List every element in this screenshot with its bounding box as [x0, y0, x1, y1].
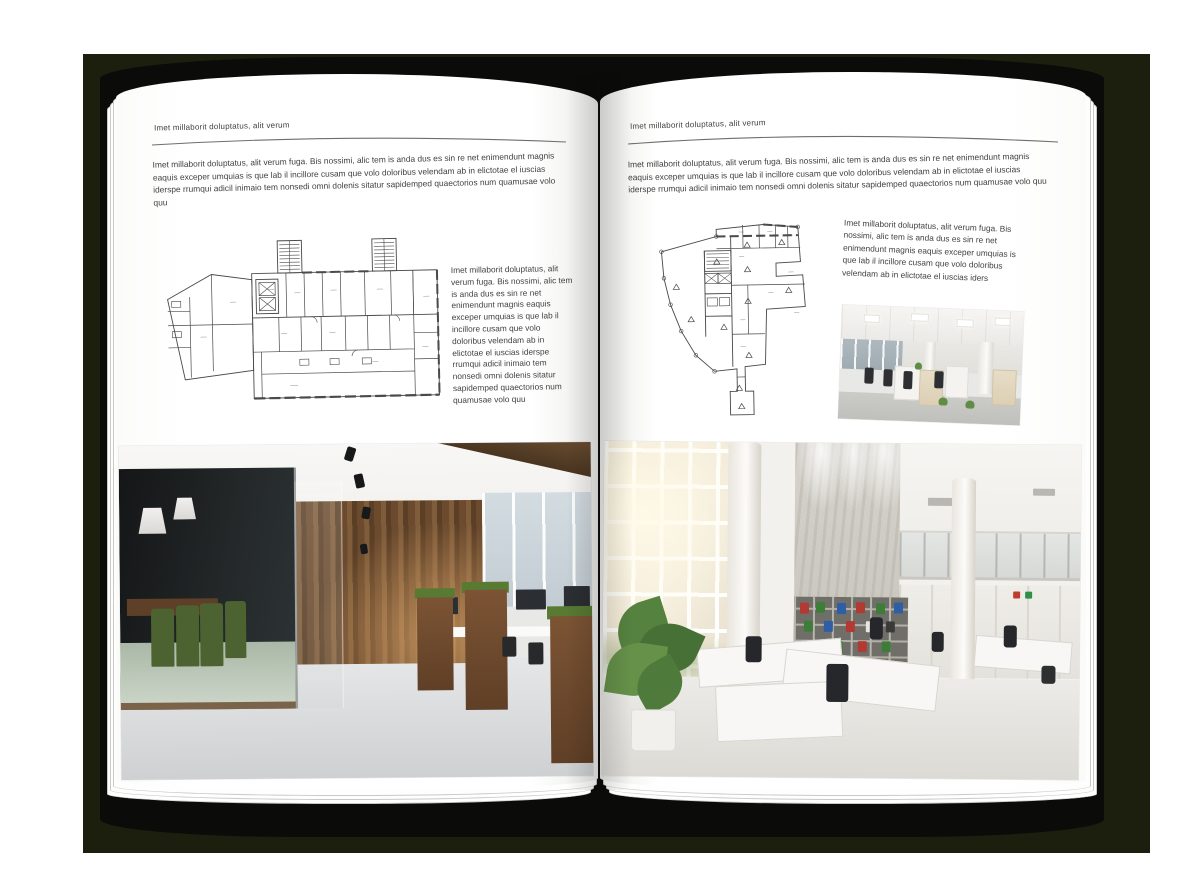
small-plant — [966, 401, 975, 409]
first-aid-sign — [1013, 592, 1020, 599]
binders-red — [857, 641, 866, 652]
pendant-lamp — [138, 507, 166, 534]
left-intro-paragraph: Imet millaborit doluptatus, alit verum f… — [152, 149, 563, 209]
binders-dark — [886, 621, 895, 632]
track-spotlight — [359, 544, 367, 555]
monitor — [563, 586, 589, 607]
black-chair — [746, 636, 762, 662]
binders-red — [846, 621, 855, 632]
right-office-photo — [602, 441, 1082, 780]
brochure-mockup-scene: Imet millaborit doluptatus, alit verum I… — [0, 0, 1200, 891]
left-office-photo — [119, 442, 594, 780]
air-vent — [928, 497, 954, 505]
small-office-photo — [838, 305, 1024, 426]
small-plant — [914, 362, 921, 369]
black-chair — [1003, 625, 1016, 647]
office-chair — [934, 371, 944, 388]
glass-bottom-frame — [121, 701, 296, 710]
right-page: Imet millaborit doluptatus, alit verum I… — [600, 72, 1086, 790]
desk-cabinet — [991, 370, 1016, 407]
glass-partition — [293, 481, 343, 709]
office-chair — [865, 367, 875, 383]
right-side-text: Imet millaborit doluptatus, alit verum f… — [842, 216, 1028, 285]
binders-blue — [837, 603, 846, 614]
right-floor-plan — [644, 221, 815, 420]
binders-blue — [894, 603, 903, 614]
waste-bin — [1041, 666, 1055, 684]
office-chair — [529, 643, 544, 665]
office-chair — [503, 636, 517, 656]
left-header-rule — [152, 132, 566, 148]
ceiling-light — [994, 317, 1010, 326]
green-chair — [176, 606, 199, 666]
plant-pot — [630, 709, 675, 752]
green-chair — [225, 601, 246, 659]
left-page: Imet millaborit doluptatus, alit verum I… — [116, 74, 598, 790]
monitor — [516, 589, 546, 609]
exit-sign — [1025, 592, 1032, 599]
black-chair — [826, 664, 848, 702]
wood-planter — [464, 590, 508, 711]
right-header-rule — [628, 130, 1058, 148]
left-floor-plan-drawing — [158, 235, 441, 409]
binders-red — [856, 602, 865, 613]
white-desk — [715, 681, 843, 742]
air-vent — [1033, 488, 1055, 495]
round-column — [951, 477, 977, 685]
desk-cabinet — [944, 366, 969, 399]
glass-meeting-room — [119, 468, 298, 710]
binders-red — [800, 603, 809, 614]
pendant-lamp — [173, 498, 196, 520]
wood-planter — [417, 597, 453, 691]
ceiling-light — [911, 313, 929, 322]
black-chair — [932, 631, 944, 651]
small-plant — [939, 397, 948, 405]
binders-green — [881, 641, 890, 652]
right-intro-paragraph: Imet millaborit doluptatus, alit verum f… — [628, 150, 1049, 197]
office-chair — [903, 371, 913, 389]
left-page-header: Imet millaborit doluptatus, alit verum — [154, 120, 290, 132]
left-floor-plan — [158, 235, 441, 409]
green-chair — [151, 608, 174, 666]
left-side-text: Imet millaborit doluptatus, alit verum f… — [451, 263, 577, 407]
ceiling-light — [956, 319, 973, 328]
ceiling-light — [863, 314, 879, 323]
right-floor-plan-drawing — [644, 221, 815, 420]
black-chair — [870, 617, 883, 639]
window-band — [840, 339, 903, 371]
wood-planter — [550, 616, 594, 763]
green-chair — [200, 603, 223, 666]
glass-railing — [899, 531, 1081, 581]
binders-blue — [824, 621, 833, 632]
office-chair — [883, 369, 893, 386]
binders-green — [876, 603, 885, 614]
binders-green — [804, 621, 813, 632]
binders-green — [816, 602, 825, 613]
right-page-header: Imet millaborit doluptatus, alit verum — [630, 118, 766, 131]
